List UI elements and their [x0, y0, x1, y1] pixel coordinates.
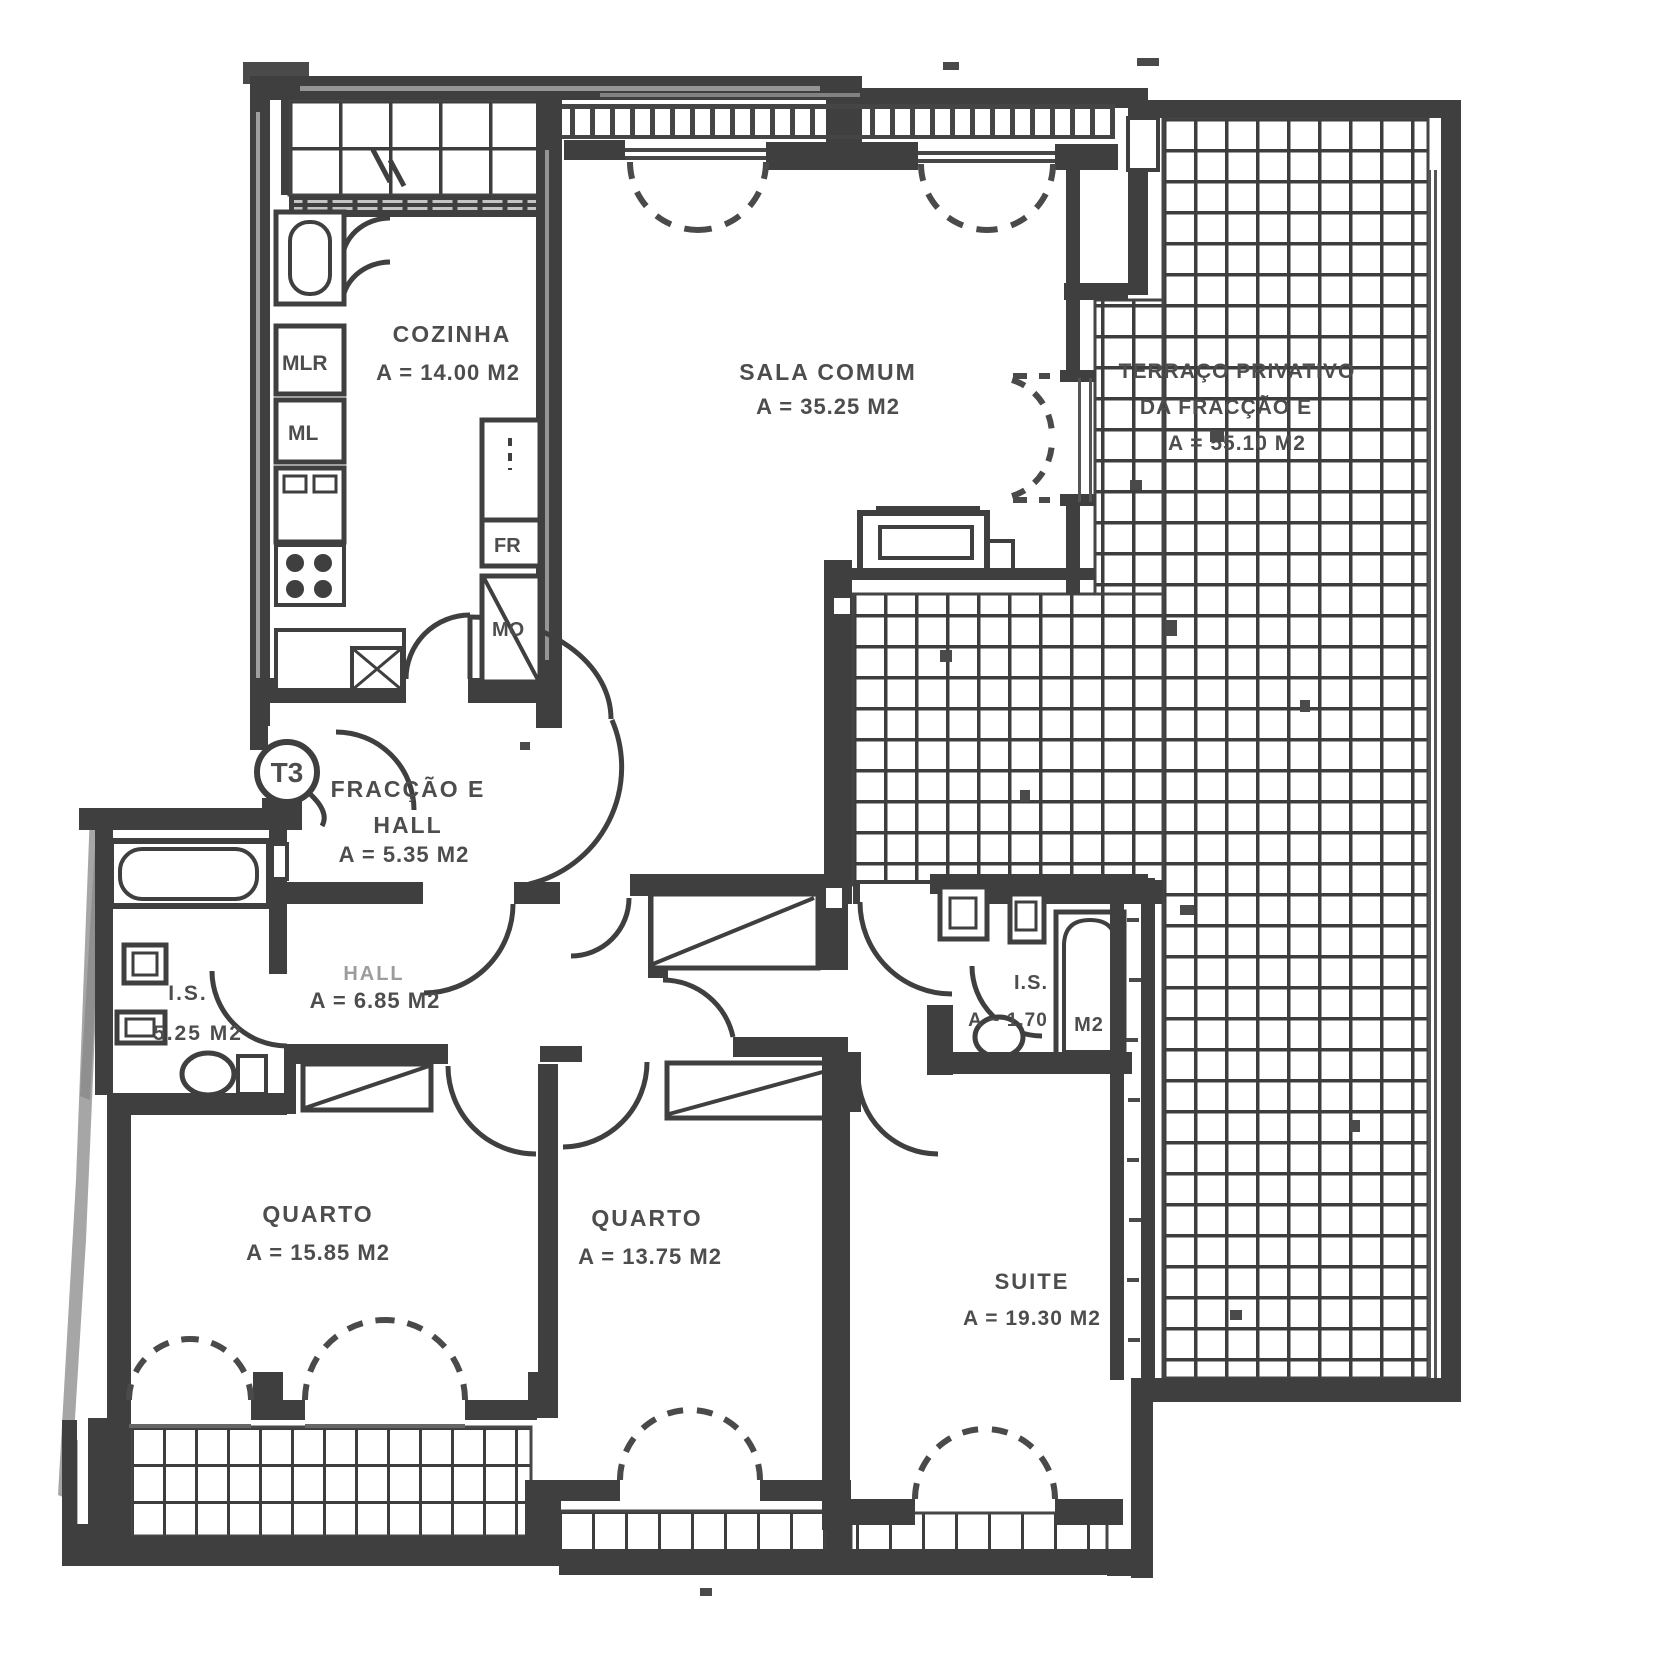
- svg-text:COZINHA: COZINHA: [393, 321, 512, 347]
- svg-text:A = 14.00 M2: A = 14.00 M2: [376, 360, 520, 385]
- svg-text:SUITE: SUITE: [995, 1269, 1070, 1294]
- svg-text:MO: MO: [492, 619, 524, 641]
- svg-text:DA FRACÇÃO E: DA FRACÇÃO E: [1140, 396, 1312, 419]
- svg-text:I.S.: I.S.: [168, 982, 208, 1005]
- svg-text:QUARTO: QUARTO: [591, 1205, 702, 1231]
- svg-text:A = 5.35 M2: A = 5.35 M2: [339, 842, 470, 867]
- svg-text:A = 35.25 M2: A = 35.25 M2: [756, 394, 900, 419]
- svg-text:A = 55.10 M2: A = 55.10 M2: [1168, 432, 1306, 455]
- svg-text:ML: ML: [288, 422, 318, 445]
- svg-text:A = 13.75 M2: A = 13.75 M2: [578, 1244, 722, 1269]
- svg-text:5.25 M2: 5.25 M2: [153, 1022, 243, 1045]
- svg-text:M2: M2: [1074, 1014, 1104, 1036]
- svg-text:SALA COMUM: SALA COMUM: [739, 359, 917, 385]
- svg-text:T3: T3: [271, 757, 304, 788]
- svg-text:MLR: MLR: [282, 352, 328, 375]
- svg-text:A = 19.30 M2: A = 19.30 M2: [963, 1307, 1101, 1330]
- svg-text:HALL: HALL: [373, 812, 442, 838]
- svg-text:QUARTO: QUARTO: [262, 1201, 373, 1227]
- svg-text:FR: FR: [494, 535, 521, 557]
- svg-text:HALL: HALL: [343, 963, 404, 985]
- svg-text:A = 15.85 M2: A = 15.85 M2: [246, 1240, 390, 1265]
- svg-text:TERRAÇO PRIVATIVO: TERRAÇO PRIVATIVO: [1119, 360, 1356, 383]
- svg-text:A ~ 1.70: A ~ 1.70: [968, 1010, 1048, 1031]
- svg-text:A = 6.85 M2: A = 6.85 M2: [310, 988, 441, 1013]
- svg-text:I.S.: I.S.: [1014, 972, 1048, 994]
- svg-text:FRACÇÃO E: FRACÇÃO E: [331, 775, 486, 802]
